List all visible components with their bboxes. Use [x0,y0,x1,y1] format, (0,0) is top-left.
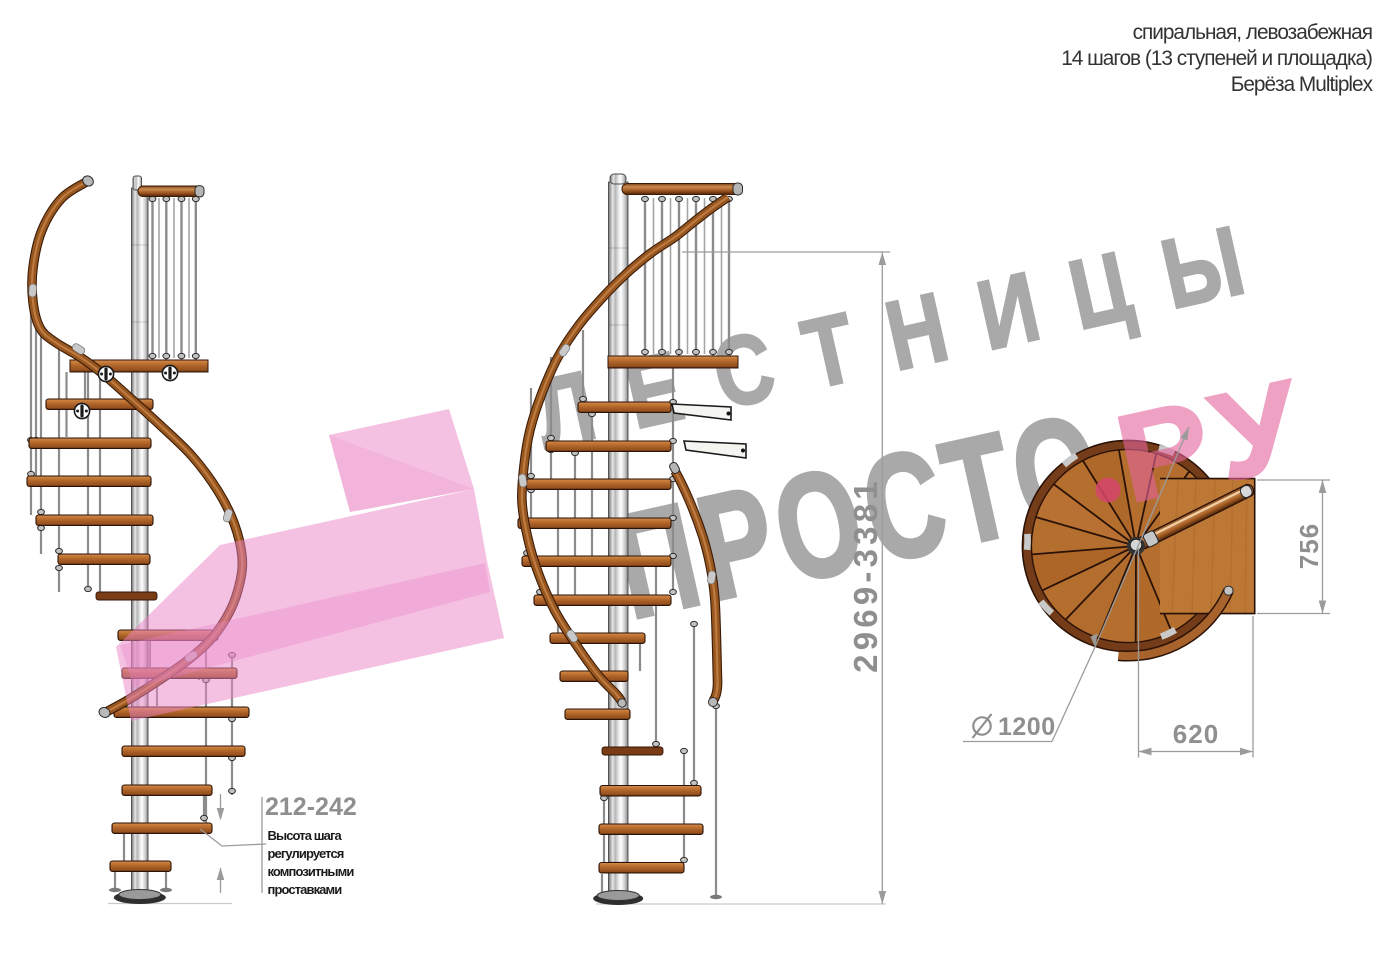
svg-text:14 шагов (13 ступеней и площад: 14 шагов (13 ступеней и площадка) [1061,47,1372,70]
svg-text:композитными: композитными [268,864,355,879]
svg-text:проставками: проставками [268,882,343,897]
svg-text:620: 620 [1173,719,1219,749]
svg-text:регулируется: регулируется [268,846,344,861]
svg-text:2969-3381: 2969-3381 [847,477,884,673]
svg-text:212-242: 212-242 [265,793,357,821]
svg-text:Высота шага: Высота шага [268,828,343,843]
svg-text:спиральная, левозабежная: спиральная, левозабежная [1133,21,1372,44]
svg-text:1200: 1200 [998,713,1056,741]
svg-text:Берёза Multiplex: Берёза Multiplex [1231,73,1374,96]
svg-text:756: 756 [1294,523,1324,569]
